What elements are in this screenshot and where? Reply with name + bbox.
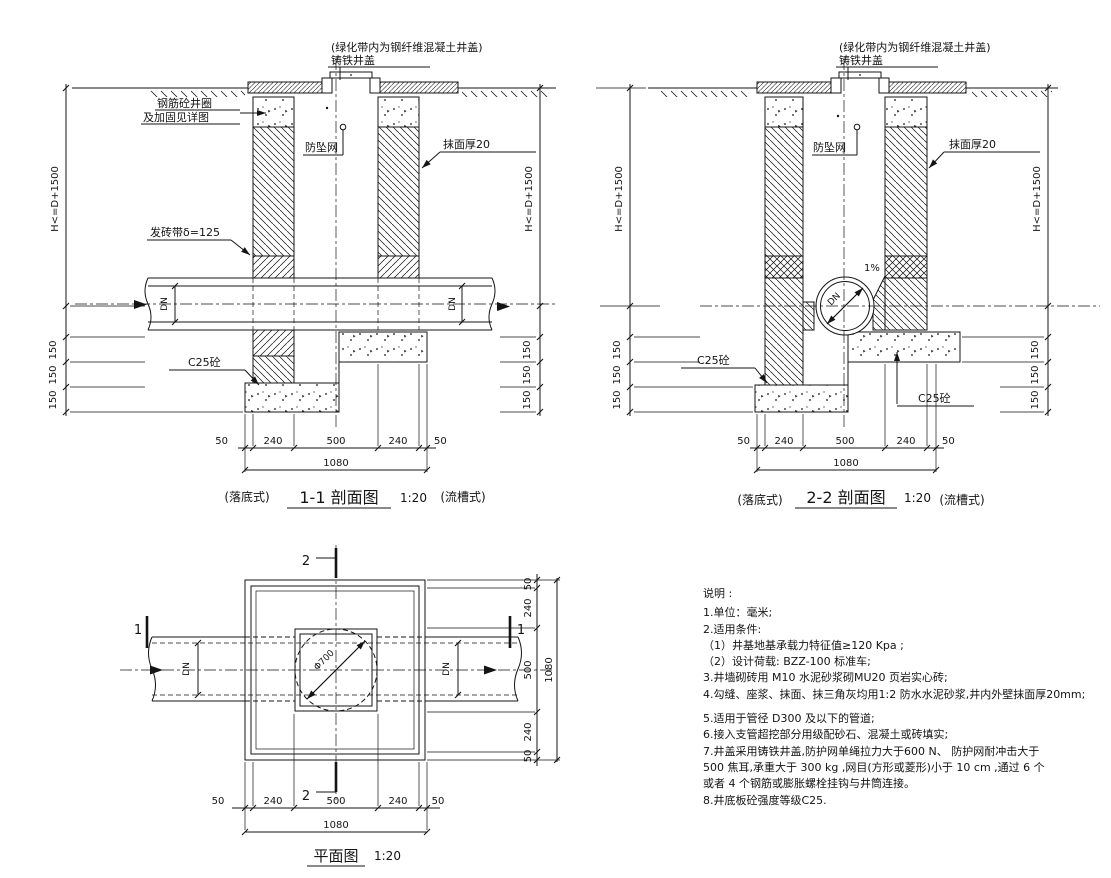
note-line: 或者 4 个钢筋或膨胀螺栓挂钩与井筒连接。 (703, 776, 1108, 792)
note-line: 5.适用于管径 D300 及以下的管道; (703, 711, 1108, 727)
dim-240: 240 (523, 722, 534, 741)
dim-240: 240 (523, 598, 534, 617)
dim-50: 50 (737, 436, 750, 447)
brick-band-left (765, 256, 803, 278)
note-line: 7.井盖采用铸铁井盖,防护网单绳拉力大于600 N、 防护网耐冲击大于 (703, 744, 1108, 760)
section-marker-1: 1 (134, 623, 142, 638)
net-marker (854, 124, 860, 130)
note-line: 3.井墙砌砖用 M10 水泥砂浆砌MU20 页岩实心砖; (703, 670, 1108, 686)
section-2-2-view: DN 1% (绿化带内为钢纤维混凝土井盖) 铸铁井盖 防坠网 抹面厚20 C25… (596, 40, 1100, 508)
section-marker-1: 1 (517, 623, 525, 638)
plaster-label: 抹面厚20 (949, 138, 996, 151)
dim-240: 240 (774, 436, 793, 447)
well-ring-left (253, 97, 294, 127)
dim-1080: 1080 (323, 820, 348, 831)
soil-hatch (658, 89, 750, 97)
dim-50: 50 (523, 750, 534, 763)
brick-band-label: 发砖带δ=125 (150, 225, 220, 239)
type-label-left: (落底式) (737, 492, 782, 507)
pipe-dn-dim: DN (182, 662, 192, 676)
channel-footing (339, 332, 427, 362)
net-label: 防坠网 (305, 140, 338, 154)
dim-150: 150 (1030, 340, 1041, 359)
note-line: （2）设计荷载: BZZ-100 标准车; (703, 654, 1108, 670)
dim-150: 150 (48, 365, 59, 384)
dim-500: 500 (326, 436, 345, 447)
cover-frame (322, 78, 332, 93)
note-line: 8.井底板砼强度等级C25. (703, 793, 1108, 809)
base-slab (755, 385, 848, 412)
cover-material-note: (绿化带内为钢纤维混凝土井盖) (839, 40, 991, 54)
height-dim: H<=D+1500 (614, 166, 625, 232)
type-label-right: (流槽式) (440, 490, 485, 504)
dim-500: 500 (326, 796, 345, 807)
pipe-dn-dim: DN (448, 297, 458, 311)
well-wall-right (885, 127, 927, 330)
dim-150: 150 (1030, 390, 1041, 409)
brick-band-right (378, 256, 419, 278)
dim-50: 50 (432, 796, 445, 807)
type-label-left: (落底式) (224, 489, 269, 504)
flow-arrow (497, 302, 510, 311)
drawing-sheet: (绿化带内为钢纤维混凝土井盖) 铸铁井盖 钢筋砼井圈 及加固见详图 防坠网 抹面… (0, 0, 1111, 878)
plaster-label: 抹面厚20 (443, 138, 490, 151)
well-wall-right (378, 127, 419, 256)
note-line: （1）井基地基承载力特征值≥120 Kpa ; (703, 638, 1108, 654)
dim-150: 150 (522, 340, 533, 359)
height-dim: H<=D+1500 (1032, 166, 1043, 232)
plan-view: Φ700 DN DN 1 1 2 2 50 240 500 240 50 108… (120, 545, 560, 866)
base-slab (245, 383, 339, 412)
cover-diameter-label: Φ700 (312, 648, 336, 672)
cover-slab (757, 82, 831, 93)
dim-1080: 1080 (833, 458, 858, 469)
note-line: 2.适用条件: (703, 622, 1108, 638)
pipe-dn-dim: DN (442, 662, 452, 676)
well-ring-right (378, 97, 419, 127)
dim-50: 50 (434, 436, 447, 447)
section-marker-2: 2 (302, 554, 310, 569)
concrete-label: C25砼 (188, 356, 221, 369)
dim-240: 240 (388, 796, 407, 807)
slope-label: 1% (864, 263, 880, 274)
dim-1080: 1080 (323, 458, 348, 469)
net-label: 防坠网 (813, 140, 846, 154)
scale-label: 1:20 (374, 849, 401, 863)
dim-240: 240 (263, 796, 282, 807)
note-line: 6.接入支管超挖部分用级配砂石、混凝土或砖填实; (703, 727, 1108, 743)
dim-240: 240 (388, 436, 407, 447)
dim-500: 500 (835, 436, 854, 447)
height-dim: H<=D+1500 (50, 166, 61, 232)
dim-240: 240 (896, 436, 915, 447)
type-label-right: (流槽式) (939, 493, 984, 507)
concrete-label: C25砼 (918, 392, 951, 405)
height-dim: H<=D+1500 (524, 166, 535, 232)
flow-bench (873, 276, 885, 330)
ring-label-line2: 及加固见详图 (143, 110, 209, 124)
net-marker (340, 124, 346, 130)
brick-band-left (253, 256, 294, 278)
plan-title: 平面图 (313, 847, 358, 865)
note-line: 500 焦耳,承重大于 300 kg ,网目(方形或菱形)小于 10 cm ,通… (703, 760, 1108, 776)
flow-arrow (134, 300, 147, 309)
cover-material-note: (绿化带内为钢纤维混凝土井盖) (331, 40, 483, 54)
cover-label: 铸铁井盖 (331, 53, 375, 67)
well-ring-right (885, 97, 927, 127)
notes-title: 说明 : (703, 586, 1108, 602)
scale-label: 1:20 (904, 491, 931, 505)
cover-label: 铸铁井盖 (839, 53, 883, 67)
dim-500: 500 (523, 660, 534, 679)
brick-band-right (885, 256, 927, 278)
dim-150: 150 (612, 365, 623, 384)
scale-label: 1:20 (400, 491, 427, 505)
section-title: 2-2 剖面图 (806, 488, 885, 507)
section-title: 1-1 剖面图 (299, 488, 378, 507)
dim-150: 150 (612, 390, 623, 409)
ring-label-line1: 钢筋砼井圈 (157, 96, 212, 110)
concrete-label: C25砼 (697, 354, 730, 367)
dim-50: 50 (215, 436, 228, 447)
dim-150: 150 (522, 365, 533, 384)
soil-hatch (150, 89, 245, 97)
channel-footing (848, 332, 960, 362)
dim-50: 50 (523, 578, 534, 591)
well-wall-left (253, 127, 294, 256)
section-1-1-view: (绿化带内为钢纤维混凝土井盖) 铸铁井盖 钢筋砼井圈 及加固见详图 防坠网 抹面… (48, 40, 556, 508)
section-marker-2: 2 (302, 789, 310, 804)
dim-50: 50 (942, 436, 955, 447)
dim-50: 50 (212, 796, 225, 807)
well-ring-left (765, 97, 803, 127)
dim-150: 150 (1030, 365, 1041, 384)
dim-240: 240 (263, 436, 282, 447)
dim-150: 150 (612, 340, 623, 359)
notes-block: 说明 : 1.单位：毫米; 2.适用条件: （1）井基地基承载力特征值≥120 … (703, 586, 1108, 809)
cover-frame (831, 78, 841, 93)
note-line: 1.单位：毫米; (703, 605, 1108, 621)
cover-slab (248, 82, 322, 93)
dim-150: 150 (48, 340, 59, 359)
dim-150: 150 (48, 390, 59, 409)
note-line: 4.勾缝、座浆、抹面、抹三角灰均用1:2 防水水泥砂浆,井内外壁抹面厚20mm; (703, 687, 1108, 703)
dim-150: 150 (522, 390, 533, 409)
dim-1080: 1080 (544, 657, 555, 682)
pipe-dn-dim: DN (160, 297, 170, 311)
